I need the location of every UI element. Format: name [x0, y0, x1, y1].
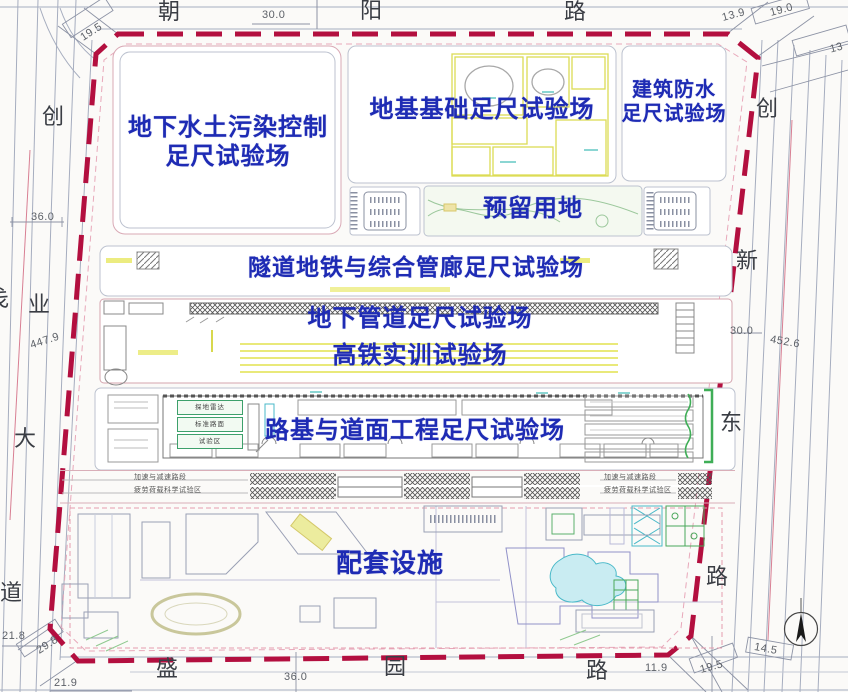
micro-label-accel-right: 加速与减速路段 [604, 474, 657, 481]
dim-30-0-top: 30.0 [262, 10, 285, 21]
micro-label-load-left: 疲劳荷载科学试验区 [134, 487, 202, 494]
zone-label-tunnel: 隧道地铁与综合管廊足尺试验场 [100, 256, 732, 279]
road-name-left-char1: 创 [42, 106, 64, 128]
road-name-bottom-char2: 园 [384, 656, 406, 678]
zone-label-waterproof-line2: 足尺试验场 [616, 104, 732, 124]
dim-11-9-bottom: 11.9 [645, 663, 668, 674]
road-name-left-char4: 道 [0, 582, 22, 604]
zone-label-pollution-line1: 地下水土污染控制 [115, 116, 341, 140]
roadbed-box-standard-road: 标准路面 [177, 417, 243, 432]
zone-label-waterproof-line1: 建筑防水 [616, 80, 732, 100]
zone-label-pipeline: 地下管道足尺试验场 [100, 307, 740, 331]
road-name-left-partial-char: 戋 [0, 288, 9, 310]
road-name-right-char1: 创 [756, 98, 778, 120]
roadbed-box-radar: 探地雷达 [177, 400, 243, 415]
road-name-left-char2: 业 [28, 294, 50, 316]
dim-21-9-bottomleft: 21.9 [54, 678, 77, 689]
support-campus [62, 506, 722, 651]
dim-36-0-left: 36.0 [31, 212, 54, 223]
road-name-right-char2: 新 [736, 250, 758, 272]
zone-label-support: 配套设施 [260, 550, 520, 576]
road-name-top-char2: 阳 [360, 0, 382, 22]
micro-label-accel-left: 加速与减速路段 [134, 474, 187, 481]
road-name-left-char3: 大 [14, 428, 36, 450]
site-plan-drawing: 朝 阳 路 盛 园 路 创 业 大 道 戋 创 新 东 路 19.5 30.0 … [0, 0, 848, 692]
road-name-bottom-char1: 盛 [156, 658, 178, 680]
zone-label-foundation: 地基基础足尺试验场 [348, 98, 616, 122]
road-name-top-char3: 路 [564, 1, 586, 23]
dim-36-0-bottom: 36.0 [284, 672, 307, 683]
north-arrow-icon [785, 598, 818, 646]
zone-label-railway: 高铁实训试验场 [100, 344, 740, 368]
road-name-bottom-char3: 路 [586, 660, 608, 682]
road-name-right-char4: 路 [706, 566, 728, 588]
road-name-top-char1: 朝 [158, 1, 180, 23]
dim-21-8-bottomleft: 21.8 [2, 631, 25, 642]
roadbed-box-test-area: 试验区 [177, 434, 243, 449]
micro-label-load-right: 疲劳荷载科学试验区 [604, 487, 672, 494]
zone-label-pollution-line2: 足尺试验场 [115, 145, 341, 169]
zone-label-reserved: 预留用地 [424, 197, 642, 221]
road-name-right-char3: 东 [720, 412, 742, 434]
